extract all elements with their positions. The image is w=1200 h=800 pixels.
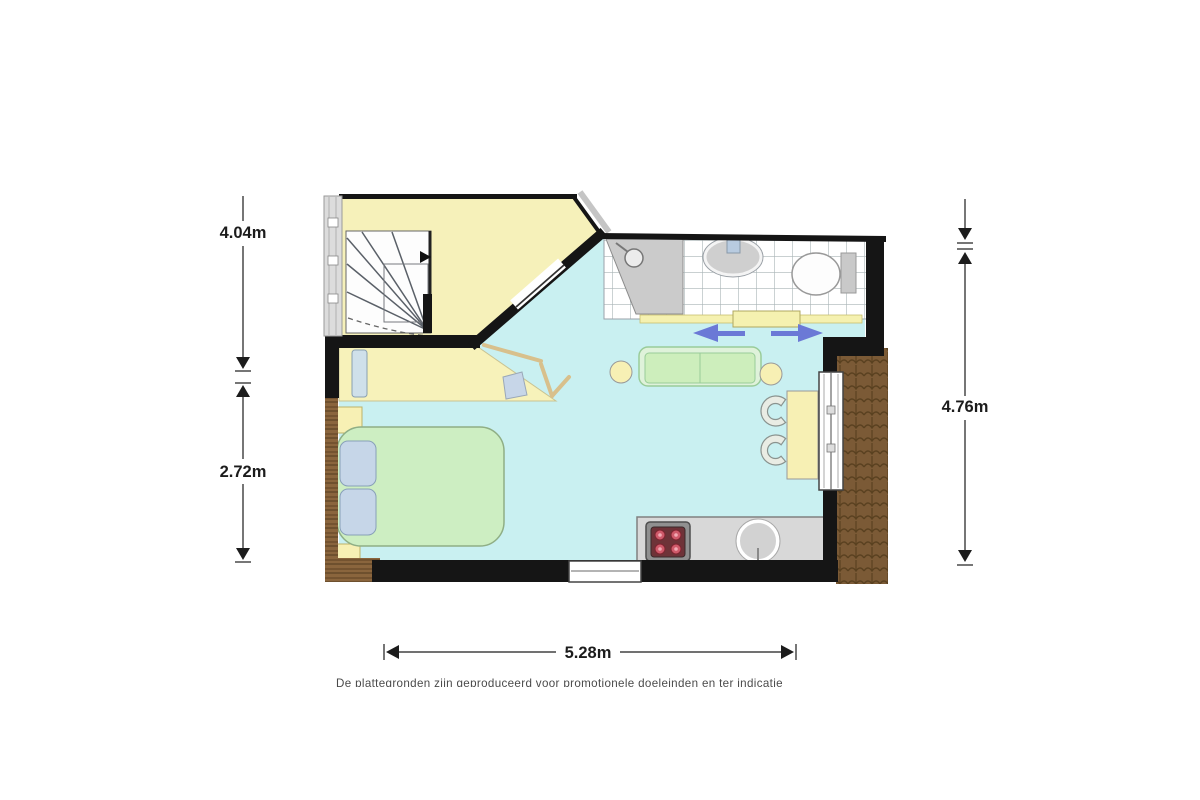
side-table — [610, 361, 632, 383]
window-right — [819, 372, 843, 490]
pillow — [340, 489, 376, 535]
dimension-label-bottom: 5.28m — [565, 644, 612, 662]
dimension-left-top — [235, 196, 251, 371]
wardrobe — [352, 350, 367, 397]
shower-head-icon — [625, 249, 643, 267]
roof-tiles — [836, 348, 888, 584]
window-bottom — [569, 561, 641, 582]
dining-table — [787, 391, 818, 479]
wood-wall-left — [325, 396, 338, 582]
pillow — [340, 441, 376, 486]
stairwell-open-side — [324, 196, 342, 336]
toilet-bowl — [792, 253, 840, 295]
dimension-label-left-bottom: 2.72m — [220, 463, 267, 481]
basin-tap-icon — [727, 239, 740, 253]
sofa — [639, 347, 761, 386]
staircase — [346, 231, 432, 336]
disclaimer-text: De plattegronden zijn geproduceerd voor … — [336, 677, 856, 687]
bathroom — [604, 237, 868, 319]
toilet-tank — [841, 253, 856, 293]
wood-wall-bottom — [325, 558, 380, 582]
kitchen-counter — [637, 517, 825, 563]
dimension-right — [957, 199, 973, 565]
dimension-label-left-top: 4.04m — [220, 224, 267, 242]
dimension-label-right: 4.76m — [942, 398, 989, 416]
side-table — [760, 363, 782, 385]
floor-plan-page: 4.04m 2.72m 4.76m 5.28m De plattegronden… — [0, 0, 1200, 800]
